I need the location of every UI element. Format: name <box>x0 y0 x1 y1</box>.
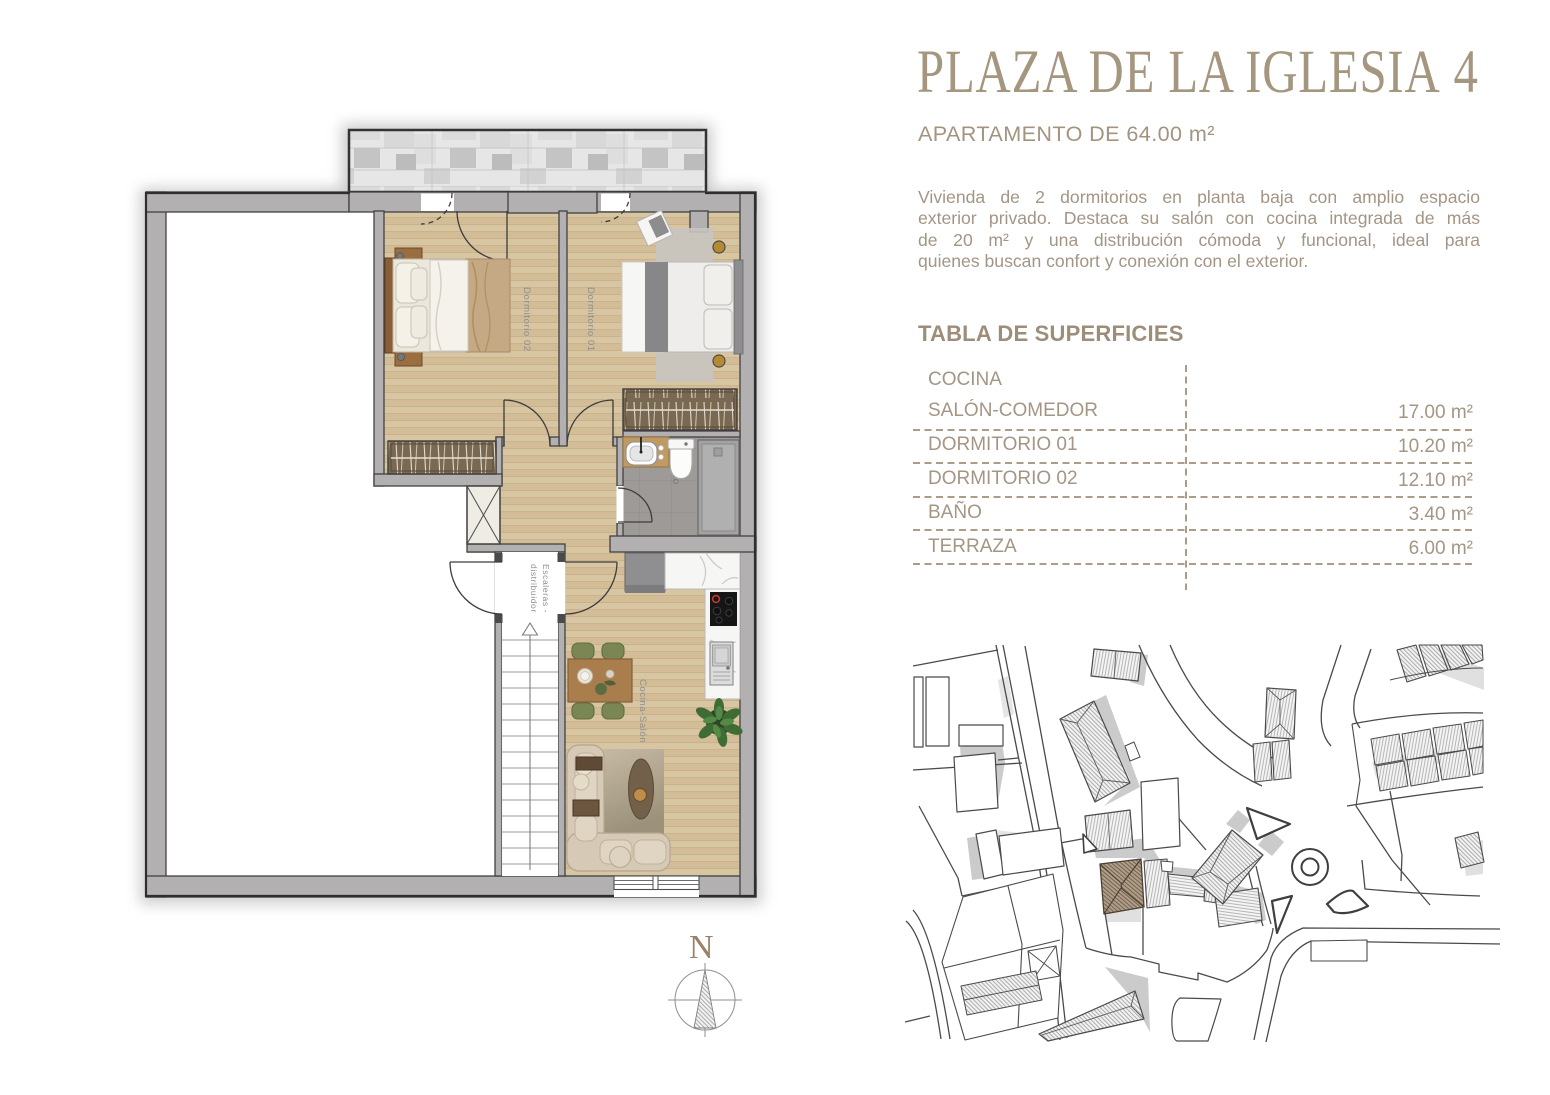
svg-text:Escaleras -: Escaleras - <box>541 564 551 613</box>
svg-text:Dormitorio 02: Dormitorio 02 <box>521 287 532 352</box>
svg-text:Cocina-Salón: Cocina-Salón <box>637 679 648 743</box>
svg-text:N: N <box>689 929 714 966</box>
svg-text:Dormitorio 01: Dormitorio 01 <box>585 287 596 352</box>
svg-text:distribuidor: distribuidor <box>529 564 539 613</box>
